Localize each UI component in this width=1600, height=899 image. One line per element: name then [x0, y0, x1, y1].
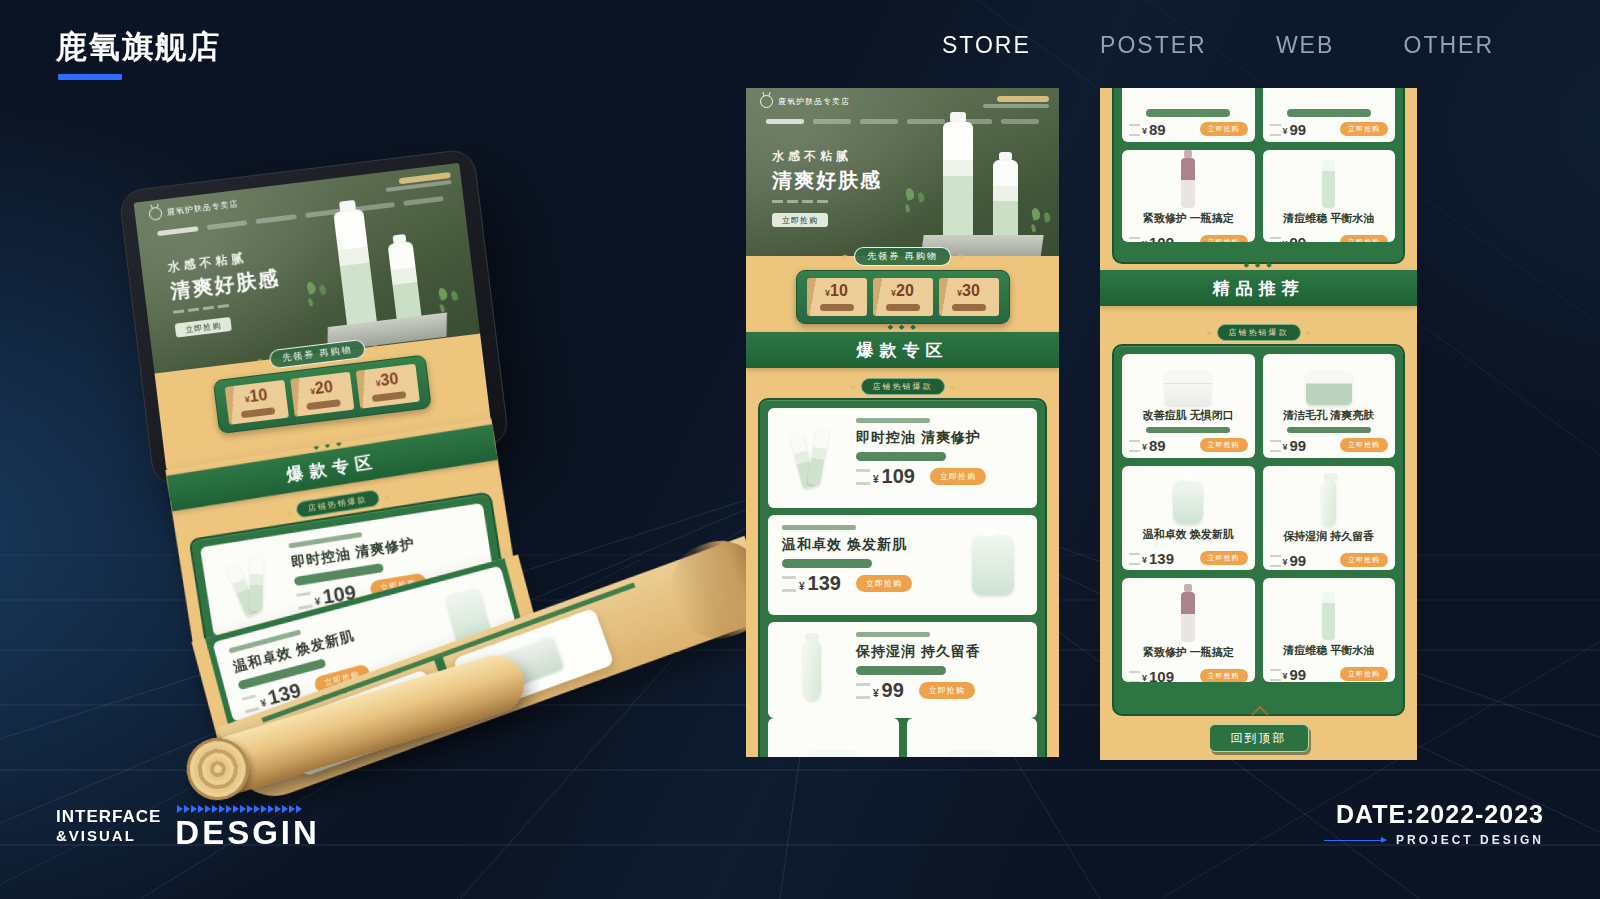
product-title: 清痘维稳 平衡水油 — [1283, 643, 1374, 658]
back-to-top-button[interactable]: 回到顶部 — [1209, 724, 1309, 752]
product-title: 紧致修护 一瓶搞定 — [1143, 211, 1234, 226]
buy-button[interactable]: 立即抢购 — [1340, 553, 1388, 567]
product-card[interactable]: 紧致修护 一瓶搞定 ¥109 立即抢购 — [1122, 150, 1255, 242]
product-title: 温和卓效 焕发新肌 — [782, 536, 941, 554]
buy-button[interactable]: 立即抢购 — [1200, 669, 1248, 682]
buy-button[interactable]: 立即抢购 — [856, 575, 912, 592]
product-image-dropper — [1173, 472, 1203, 524]
product-tag-bar — [1287, 109, 1371, 117]
product-card[interactable]: 即时控油 清爽修护 ¥109 立即抢购 — [768, 408, 1037, 508]
price-prefix-bar — [1270, 669, 1281, 681]
product-image-jar — [1306, 360, 1352, 405]
badge-left-arrow-icon: « — [850, 382, 855, 392]
hero-cta-button[interactable]: 立即抢购 — [175, 317, 232, 338]
coupon-30[interactable]: ¥30 — [356, 364, 420, 409]
product-card[interactable]: ¥99 立即抢购 — [1263, 88, 1396, 142]
product-title: 即时控油 清爽修护 — [856, 429, 1029, 447]
buy-button[interactable]: 立即抢购 — [1200, 122, 1248, 136]
hot-zone-band: 爆款专区 — [746, 332, 1059, 368]
price-prefix-bar — [1129, 237, 1140, 242]
coupon-20[interactable]: ¥20 — [290, 372, 354, 417]
product-image-bottles — [768, 408, 856, 508]
product-image-green-bottle — [1322, 584, 1335, 640]
product-tag-bar — [856, 452, 946, 461]
hero-cta-button[interactable]: 立即抢购 — [772, 213, 828, 227]
coupon-ribbon: « 先领券 再购物 » — [746, 247, 1059, 266]
hot-zone-title: 爆款专区 — [285, 449, 379, 486]
ribbon-right-arrow-icon: » — [958, 252, 964, 262]
tablet-mockup: 鹿氧护肤品专卖店 水感不粘腻 清爽好肤感 立即抢购 « 先领券 再购物 — [87, 82, 765, 830]
hero-headline: 水感不粘腻 清爽好肤感 立即抢购 — [772, 148, 882, 227]
price-prefix-bar — [1270, 124, 1281, 136]
price-prefix-bar — [1129, 124, 1140, 136]
badge-right-arrow-icon: » — [950, 382, 955, 392]
price-prefix-bar — [856, 469, 870, 485]
product-card[interactable]: 温和卓效 焕发新肌 ¥139 立即抢购 — [1122, 466, 1255, 570]
leaf-decoration — [437, 287, 449, 301]
product-card[interactable] — [768, 718, 899, 757]
price-prefix-bar — [856, 683, 870, 699]
buy-button[interactable]: 立即抢购 — [1200, 235, 1248, 242]
price-prefix-bar — [296, 592, 312, 610]
buy-button[interactable]: 立即抢购 — [930, 468, 986, 485]
product-image-jar — [1165, 360, 1211, 405]
micro-text-bar — [856, 418, 930, 423]
hero-bottle-small — [993, 160, 1018, 246]
product-card[interactable]: 保持湿润 持久留香 ¥99 立即抢购 — [768, 622, 1037, 718]
hot-badge: « 店铺热销爆款 » — [1206, 324, 1310, 341]
product-image-green-bottle — [1322, 156, 1335, 208]
leaf-decoration — [905, 187, 916, 201]
buy-button[interactable]: 立即抢购 — [919, 682, 975, 699]
hero-bottle-large — [333, 209, 377, 330]
product-card[interactable]: 清痘维稳 平衡水油 ¥99 立即抢购 — [1263, 150, 1396, 242]
product-title: 保持湿润 持久留香 — [1283, 529, 1374, 544]
badge-text: 店铺热销爆款 — [861, 378, 945, 395]
coupon-20[interactable]: ¥20 — [873, 278, 933, 316]
price-prefix-bar — [1129, 440, 1140, 452]
product-tag-bar — [1146, 427, 1230, 433]
badge-right-arrow-icon: » — [383, 491, 390, 502]
grid-products-panel: 改善痘肌 无惧闭口 ¥89 立即抢购 清洁毛孔 清爽亮肤 ¥99 — [1112, 344, 1405, 716]
footer-interface-label: INTERFACE — [56, 807, 161, 826]
price-prefix-bar — [782, 576, 796, 592]
price-prefix-bar — [1270, 440, 1281, 452]
badge-right-arrow-icon: » — [1306, 328, 1311, 338]
footer-desgin-label: DESGIN — [175, 816, 320, 850]
store-nav-bar[interactable] — [766, 119, 1039, 124]
badge-left-arrow-icon: « — [1206, 328, 1211, 338]
footer-date-block: DATE:2022-2023 PROJECT DESIGN — [1324, 800, 1544, 847]
title-underline — [58, 74, 122, 80]
hero-headline: 水感不粘腻 清爽好肤感 立即抢购 — [167, 246, 286, 338]
buy-button[interactable]: 立即抢购 — [1340, 235, 1388, 242]
product-tag-bar — [1287, 427, 1371, 433]
product-card[interactable]: ¥89 立即抢购 — [1122, 88, 1255, 142]
nav-tab-store[interactable]: STORE — [942, 32, 1031, 59]
coupon-panel: ¥10 ¥20 ¥30 — [796, 270, 1010, 324]
product-title: 即时控油 清爽修护 — [290, 525, 480, 573]
product-title: 温和卓效 焕发新肌 — [1143, 527, 1234, 542]
featured-title: 精品推荐 — [1213, 277, 1305, 300]
hot-zone-title: 爆款专区 — [857, 339, 949, 362]
footer-date-label: DATE:2022-2023 — [1324, 800, 1544, 829]
product-card[interactable]: 清痘维稳 平衡水油 ¥99 立即抢购 — [1263, 578, 1396, 682]
nav-tab-other[interactable]: OTHER — [1404, 32, 1495, 59]
price-prefix-bar — [1270, 237, 1281, 242]
buy-button[interactable]: 立即抢购 — [1200, 438, 1248, 452]
nav-tab-web[interactable]: WEB — [1276, 32, 1334, 59]
product-image-dark-bottle — [1181, 584, 1195, 642]
product-image-tube — [1322, 472, 1336, 526]
shop-name: 鹿氧护肤品专卖店 — [778, 96, 850, 107]
deer-logo-icon — [760, 95, 773, 108]
shop-name: 鹿氧护肤品专卖店 — [166, 198, 239, 218]
price-prefix-bar — [1129, 671, 1140, 682]
product-tag-bar — [1146, 109, 1230, 117]
leaf-decoration — [305, 281, 317, 295]
product-image-jar — [810, 724, 856, 757]
hot-products-panel: 即时控油 清爽修护 ¥109 立即抢购 温和卓效 焕发新肌 — [758, 398, 1047, 757]
product-title: 清痘维稳 平衡水油 — [1283, 211, 1374, 226]
mockup-screen: 鹿氧护肤品专卖店 水感不粘腻 清爽好肤感 立即抢购 « 先领券 再购物 — [134, 163, 492, 471]
featured-band: 精品推荐 — [1100, 270, 1417, 306]
store-screenshot-top: 鹿氧护肤品专卖店 水感不粘腻 清爽好肤感 立即抢购 « 先领券 再购物 » ¥1… — [746, 88, 1059, 757]
product-title: 清洁毛孔 清爽亮肤 — [1283, 408, 1374, 423]
hero-line1: 水感不粘腻 — [772, 148, 882, 165]
product-title: 改善痘肌 无惧闭口 — [1143, 408, 1234, 423]
footer-studio-block: INTERFACE &VISUAL DESGIN — [56, 802, 320, 850]
top-navigation: STORE POSTER WEB OTHER — [942, 32, 1494, 59]
buy-button[interactable]: 立即抢购 — [1340, 667, 1388, 681]
product-card[interactable]: 紧致修护 一瓶搞定 ¥109 立即抢购 — [1122, 578, 1255, 682]
coupon-10[interactable]: ¥10 — [225, 380, 289, 425]
hot-badge: « 店铺热销爆款 » — [850, 378, 954, 395]
leaf-decoration — [1031, 207, 1042, 221]
page-title: 鹿氧旗舰店 — [56, 26, 221, 68]
product-card[interactable]: 清洁毛孔 清爽亮肤 ¥99 立即抢购 — [1263, 354, 1396, 458]
price-prefix-bar — [1129, 553, 1140, 565]
product-card[interactable]: 温和卓效 焕发新肌 ¥139 立即抢购 — [768, 515, 1037, 615]
hero-line2: 清爽好肤感 — [772, 167, 882, 194]
product-image-jar — [949, 724, 995, 757]
shop-coupon-badge[interactable] — [385, 172, 452, 192]
store-hero-banner: 鹿氧护肤品专卖店 水感不粘腻 清爽好肤感 立即抢购 — [746, 88, 1059, 256]
product-card[interactable]: 保持湿润 持久留香 ¥99 立即抢购 — [1263, 466, 1396, 570]
product-image-dark-bottle — [1181, 156, 1195, 208]
product-image-dropper — [949, 515, 1037, 615]
hero-subtitle-bars — [772, 200, 882, 203]
coupon-30[interactable]: ¥30 — [939, 278, 999, 316]
product-card[interactable] — [907, 718, 1038, 757]
footer-visual-label: &VISUAL — [56, 826, 161, 845]
ribbon-left-arrow-icon: « — [256, 356, 263, 367]
buy-button[interactable]: 立即抢购 — [1340, 438, 1388, 452]
product-image-tube — [768, 622, 856, 718]
product-card[interactable]: 改善痘肌 无惧闭口 ¥89 立即抢购 — [1122, 354, 1255, 458]
deer-logo-icon — [148, 206, 162, 220]
badge-left-arrow-icon: « — [286, 506, 293, 517]
micro-text-bar — [782, 525, 856, 530]
price-prefix-bar — [242, 694, 260, 713]
buy-button[interactable]: 立即抢购 — [1200, 551, 1248, 565]
micro-text-bar — [856, 632, 930, 637]
arrow-right-icon — [1324, 840, 1386, 841]
nav-tab-poster[interactable]: POSTER — [1100, 32, 1207, 59]
price-prefix-bar — [1270, 555, 1281, 567]
badge-text: 店铺热销爆款 — [1217, 324, 1301, 341]
ribbon-right-arrow-icon: » — [372, 342, 379, 353]
featured-products-panel: ¥89 立即抢购 ¥99 立即抢购 紧致修护 一瓶搞定 — [1112, 88, 1405, 264]
ribbon-left-arrow-icon: « — [842, 252, 848, 262]
shop-coupon-badge[interactable] — [983, 96, 1049, 108]
hero-bottle-large — [943, 122, 973, 240]
coupon-10[interactable]: ¥10 — [807, 278, 867, 316]
buy-button[interactable]: 立即抢购 — [1340, 122, 1388, 136]
portfolio-page: 鹿氧旗舰店 STORE POSTER WEB OTHER 鹿氧护肤品专卖店 水感… — [0, 0, 1600, 899]
product-title: 紧致修护 一瓶搞定 — [1143, 645, 1234, 660]
footer-project-label: PROJECT DESIGN — [1396, 833, 1544, 847]
store-screenshot-bottom: ¥89 立即抢购 ¥99 立即抢购 紧致修护 一瓶搞定 — [1100, 88, 1417, 760]
product-tag-bar — [782, 559, 872, 568]
product-title: 保持湿润 持久留香 — [856, 643, 1029, 661]
ribbon-text: 先领券 再购物 — [854, 247, 951, 266]
product-tag-bar — [856, 666, 946, 675]
